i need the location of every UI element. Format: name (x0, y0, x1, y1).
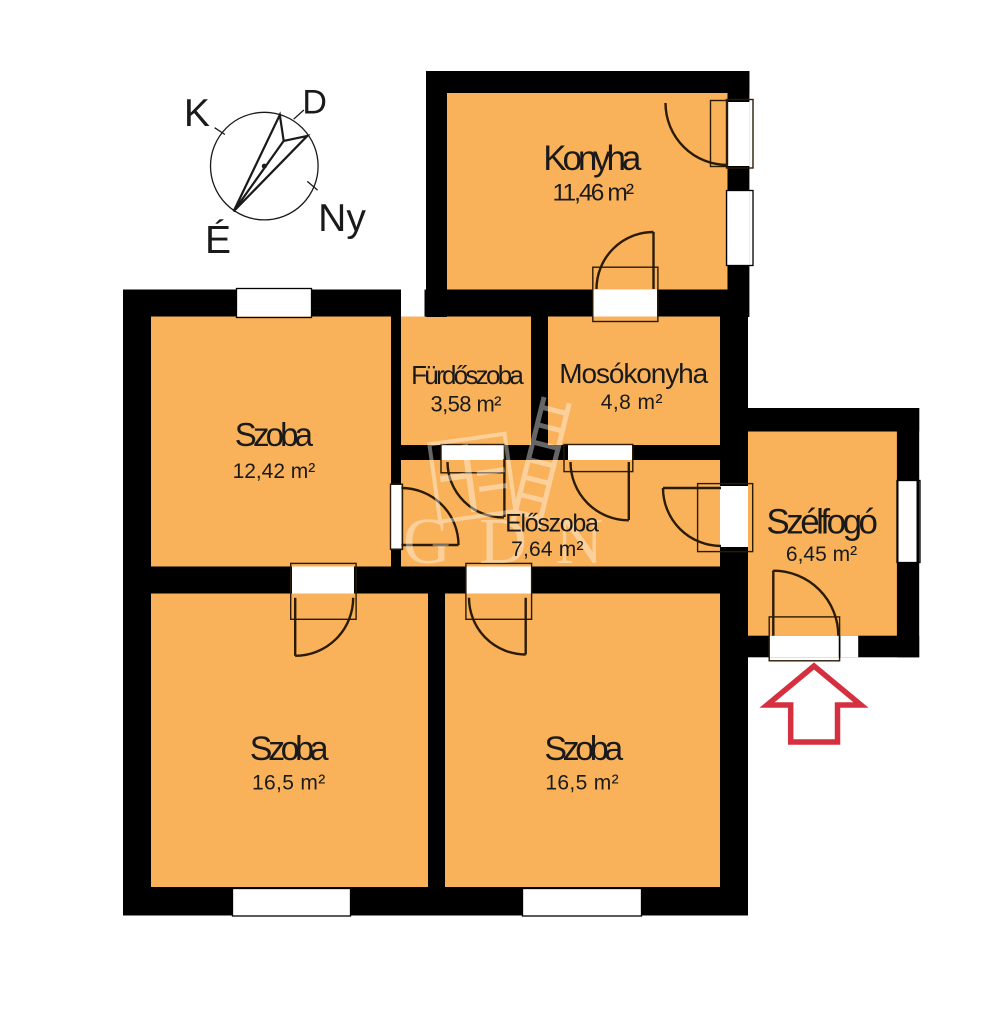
svg-text:Mosókonyha: Mosókonyha (559, 358, 708, 389)
svg-text:É: É (205, 219, 231, 262)
svg-text:Szoba: Szoba (235, 416, 314, 453)
svg-text:16,5 m²: 16,5 m² (545, 772, 618, 795)
svg-text:Ny: Ny (318, 197, 366, 240)
svg-text:11,46 m²: 11,46 m² (553, 180, 635, 207)
svg-text:4,8 m²: 4,8 m² (601, 391, 663, 414)
svg-text:D: D (302, 84, 327, 122)
svg-text:Előszoba: Előszoba (505, 510, 599, 538)
svg-text:Szélfogó: Szélfogó (766, 502, 878, 541)
svg-text:6,45 m²: 6,45 m² (786, 543, 857, 566)
svg-text:3,58 m²: 3,58 m² (431, 392, 502, 417)
svg-text:Szoba: Szoba (544, 730, 623, 768)
svg-text:7,64 m²: 7,64 m² (511, 538, 583, 561)
svg-text:Szoba: Szoba (250, 730, 329, 768)
svg-text:K: K (184, 92, 210, 135)
svg-text:Fürdőszoba: Fürdőszoba (411, 360, 524, 390)
svg-text:16,5 m²: 16,5 m² (252, 772, 325, 795)
svg-text:12,42 m²: 12,42 m² (233, 460, 316, 483)
svg-text:Konyha: Konyha (543, 139, 642, 178)
